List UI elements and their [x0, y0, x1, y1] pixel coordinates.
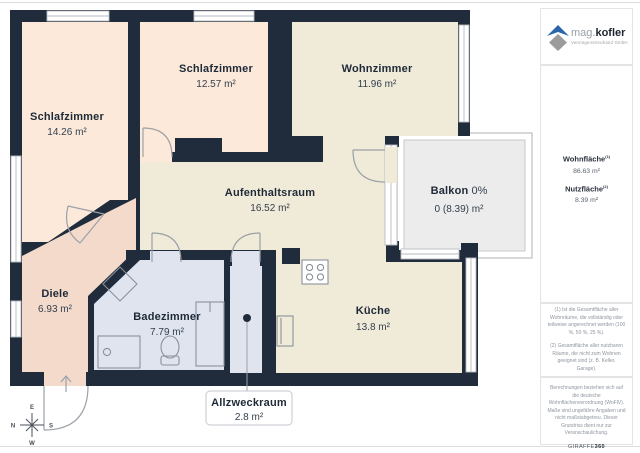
compass-s: S	[49, 424, 53, 430]
label-kueche: Küche	[356, 305, 391, 317]
label-allzweckraum: Allzweckraum	[211, 397, 287, 409]
area-schlafzimmer-1: 14.26 m²	[47, 127, 87, 138]
area-allzweckraum: 2.8 m²	[235, 412, 264, 423]
metric-wohnflaeche: Wohnfläche(1) 86.63 m²	[563, 154, 610, 175]
area-badezimmer: 7.79 m²	[150, 327, 185, 338]
footnote-1: (1) Ist die Gesamtfläche aller Wohnräume…	[547, 307, 626, 337]
area-metrics-section: Wohnfläche(1) 86.63 m² Nutzfläche(2) 8.3…	[540, 65, 633, 303]
floorplan-page: E N S W Schlafzimmer 14.26 m² Schlafzimm…	[0, 0, 640, 453]
label-balkon: Balkon 0%	[431, 185, 488, 197]
footnotes-section: (1) Ist die Gesamtfläche aller Wohnräume…	[540, 303, 633, 377]
area-diele: 6.93 m²	[38, 304, 73, 315]
stove-icon	[302, 260, 328, 284]
page-bottom-rule	[0, 446, 640, 447]
brand-name: mag.kofler	[571, 28, 628, 39]
area-balkon: 0 (8.39) m²	[435, 204, 485, 215]
brand-subtitle: Vermögenstreuhand GmbH	[571, 41, 628, 45]
area-wohnzimmer: 11.96 m²	[358, 79, 397, 90]
compass-e: E	[30, 405, 34, 411]
area-aufenthaltsraum: 16.52 m²	[250, 203, 290, 214]
compass-n: N	[11, 424, 15, 430]
page-top-rule	[0, 2, 640, 3]
giraffe360-brand: GIRAFFE360	[547, 444, 626, 450]
disclaimer-text: Berechnungen beziehen sich auf die deuts…	[547, 385, 626, 438]
info-sidebar: mag.kofler Vermögenstreuhand GmbH Wohnfl…	[540, 8, 633, 445]
label-wohnzimmer: Wohnzimmer	[342, 63, 413, 75]
area-kueche: 13.8 m²	[356, 322, 391, 333]
metric-nutzflaeche: Nutzfläche(2) 8.39 m²	[565, 184, 608, 205]
mag-kofler-logo-icon	[545, 22, 571, 52]
label-aufenthaltsraum: Aufenthaltsraum	[225, 187, 315, 199]
area-schlafzimmer-2: 12.57 m²	[196, 79, 236, 90]
disclaimer-section: Berechnungen beziehen sich auf die deuts…	[540, 377, 633, 445]
compass-icon	[20, 413, 44, 437]
label-schlafzimmer-2: Schlafzimmer	[179, 63, 253, 75]
label-badezimmer: Badezimmer	[133, 311, 201, 323]
label-diele: Diele	[41, 288, 68, 300]
footnote-2: (2) Gesamtfläche aller nutzbaren Räume, …	[547, 343, 626, 373]
label-schlafzimmer-1: Schlafzimmer	[30, 111, 104, 123]
logo-section: mag.kofler Vermögenstreuhand GmbH	[540, 8, 633, 65]
